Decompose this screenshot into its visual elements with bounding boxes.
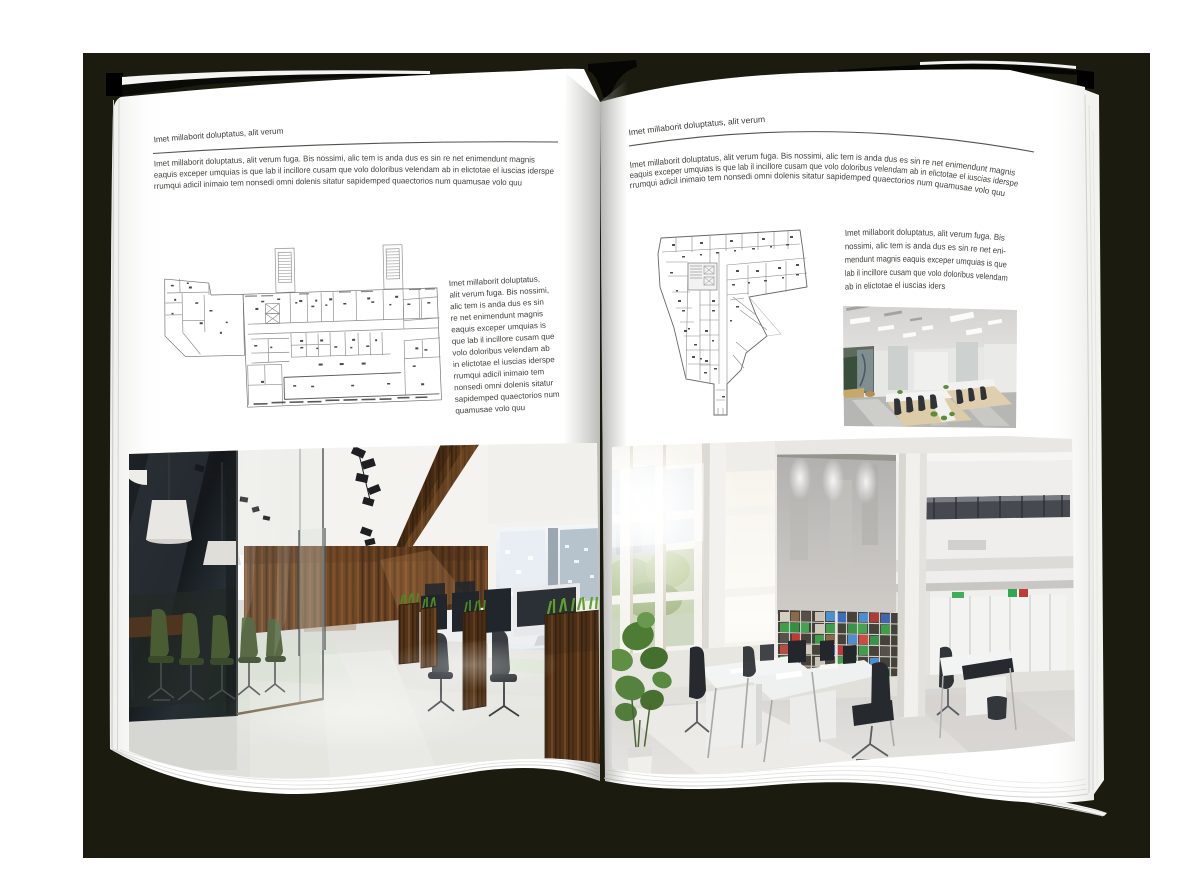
svg-text:ab in elictotae el iuscias ide: ab in elictotae el iuscias iders xyxy=(845,280,946,292)
